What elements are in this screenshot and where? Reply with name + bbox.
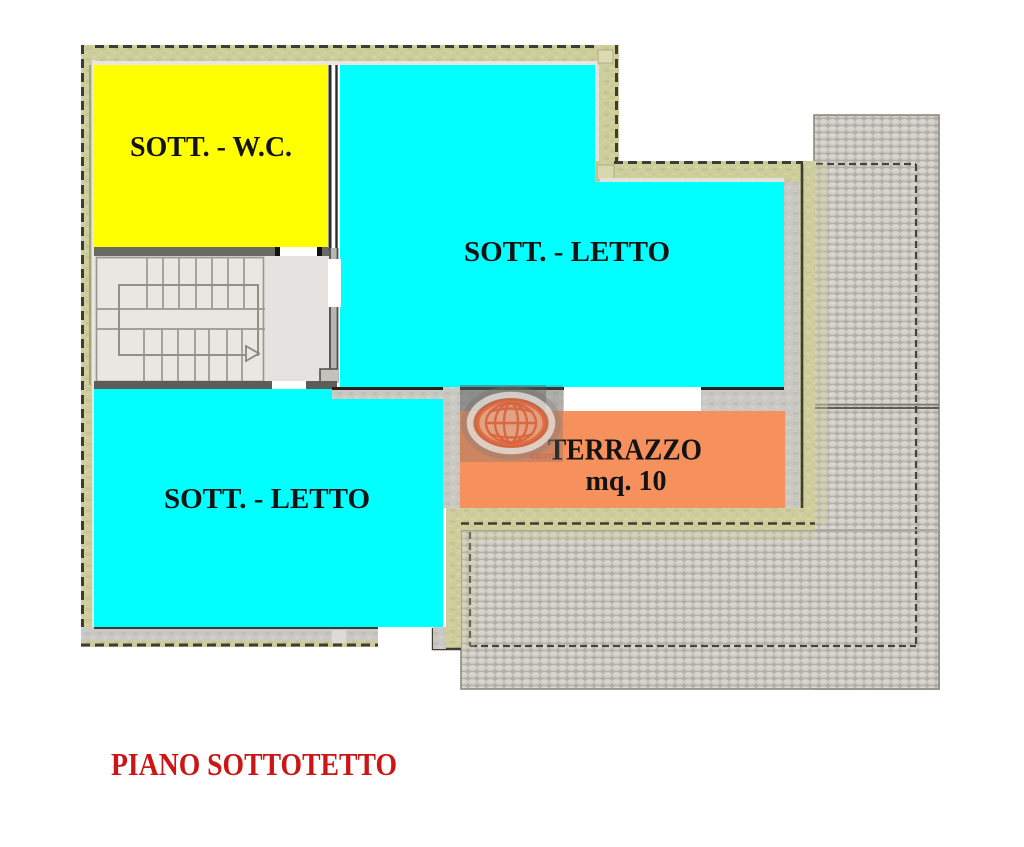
- svg-text:PIANO SOTTOTETTO: PIANO SOTTOTETTO: [111, 746, 397, 782]
- svg-text:mq. 10: mq. 10: [586, 466, 667, 497]
- svg-text:SOTT. - LETTO: SOTT. - LETTO: [164, 483, 370, 515]
- svg-text:SOTT. - W.C.: SOTT. - W.C.: [130, 132, 292, 163]
- svg-text:SOTT. - LETTO: SOTT. - LETTO: [464, 236, 670, 268]
- svg-text:GIUSTI: GIUSTI: [530, 453, 555, 461]
- svg-text:TERRAZZO: TERRAZZO: [548, 432, 702, 467]
